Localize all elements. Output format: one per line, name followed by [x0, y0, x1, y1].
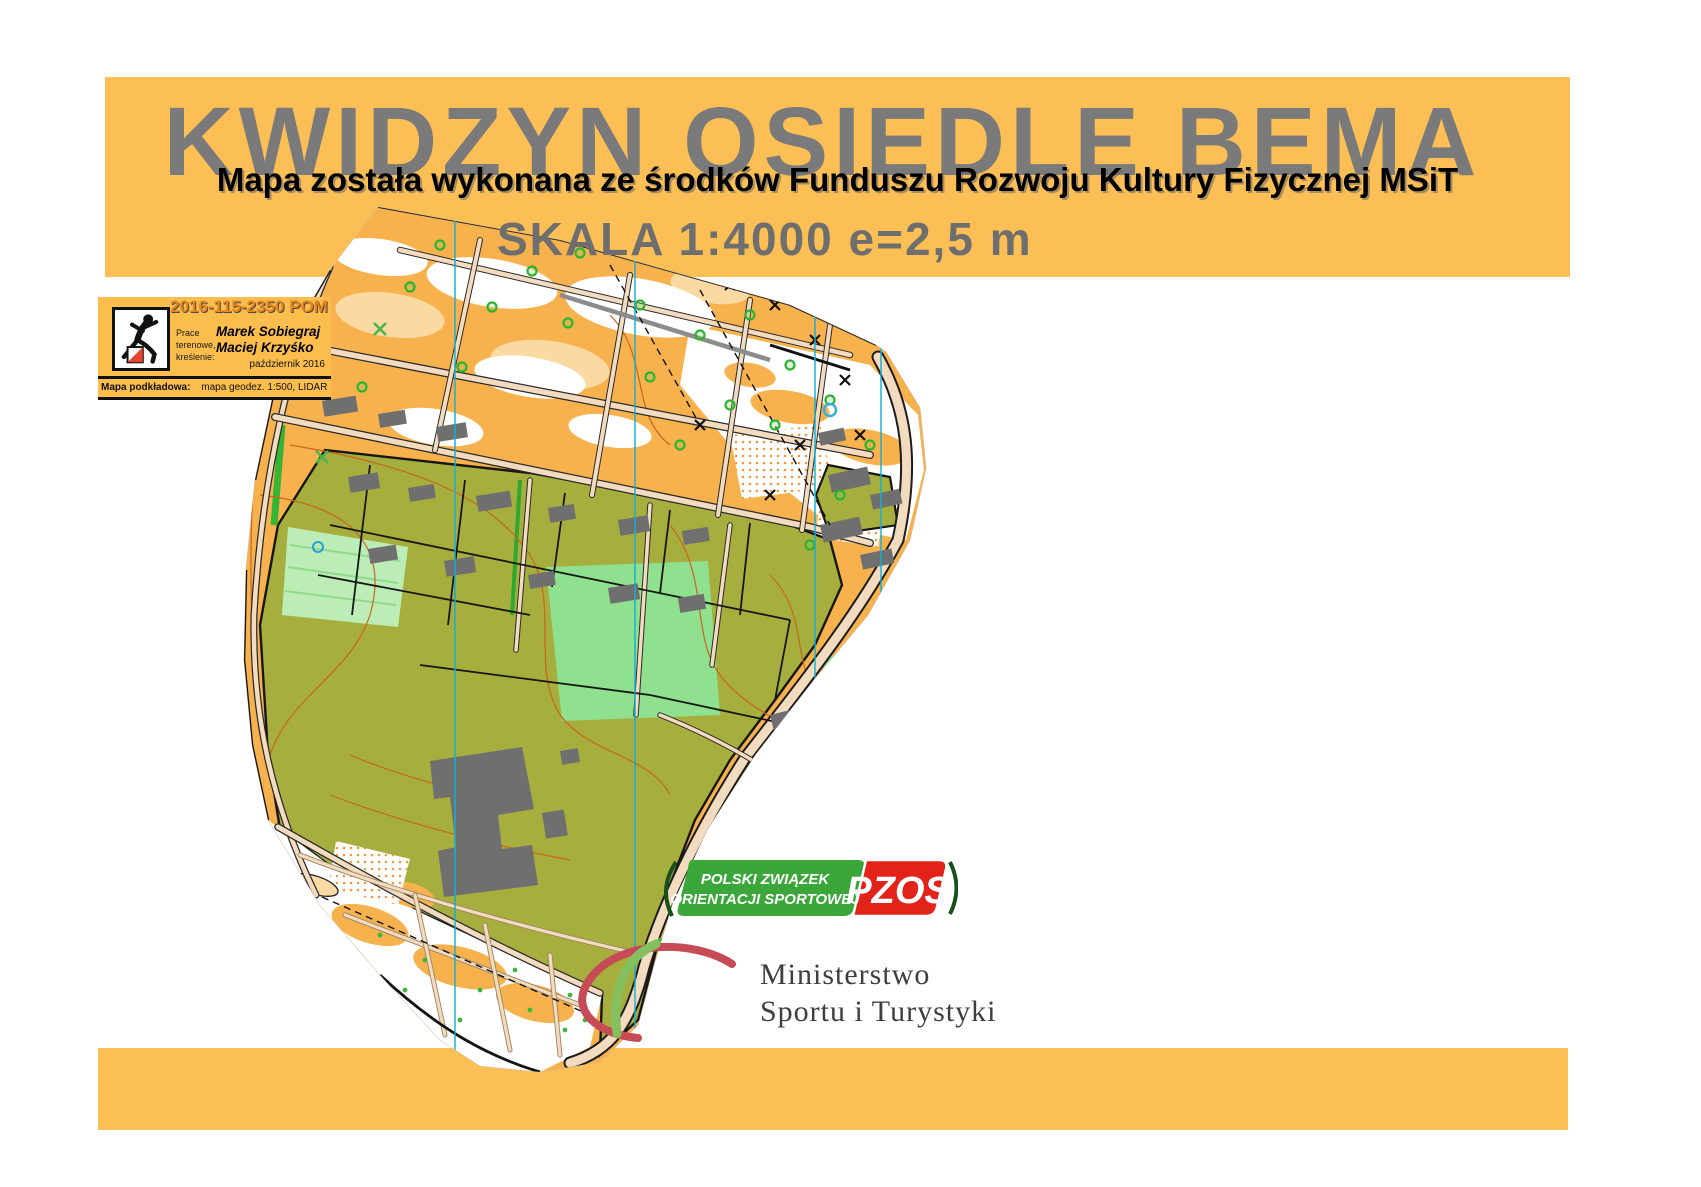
ministry-line1: Ministerstwo — [760, 956, 996, 993]
funding-subtitle: Mapa została wykonana ze środków Fundusz… — [105, 161, 1570, 199]
map-id: 2016-115-2350 POM — [170, 297, 328, 317]
orienteering-runner-icon — [112, 307, 170, 371]
pzos-logo: POLSKI ZWIĄZEK ORIENTACJI SPORTOWEJ PZOS — [658, 856, 958, 920]
scale-text: SKALA 1:4000 e=2,5 m — [497, 212, 1033, 266]
ministry-swoosh-icon — [562, 938, 762, 1053]
authors: Marek Sobiegraj Maciej Krzyśko — [216, 324, 320, 356]
credits-divider — [98, 376, 331, 379]
credits-box: 2016-115-2350 POM Prace terenowe, kreśle… — [98, 297, 331, 400]
poster: KWIDZYN OSIEDLE BEMA Mapa została wykona… — [0, 0, 1701, 1187]
base-map-row: Mapa podkładowa: mapa geodez. 1:500, LID… — [101, 382, 327, 393]
work-label: Prace terenowe, kreślenie: — [176, 327, 216, 363]
pzos-line2: ORIENTACJI SPORTOWEJ — [670, 891, 860, 908]
survey-date: październik 2016 — [249, 359, 325, 370]
pzos-acronym: PZOS — [846, 870, 949, 912]
author-1: Marek Sobiegraj — [216, 324, 320, 340]
ministry-logo: Ministerstwo Sportu i Turystyki — [760, 956, 996, 1030]
pzos-right-flourish-icon — [950, 862, 956, 914]
base-map-label: Mapa podkładowa: — [101, 382, 190, 393]
author-2: Maciej Krzyśko — [216, 340, 320, 356]
ministry-line2: Sportu i Turystyki — [760, 993, 996, 1030]
base-map-value: mapa geodez. 1:500, LIDAR — [201, 382, 327, 393]
pzos-line1: POLSKI ZWIĄZEK — [701, 871, 830, 888]
